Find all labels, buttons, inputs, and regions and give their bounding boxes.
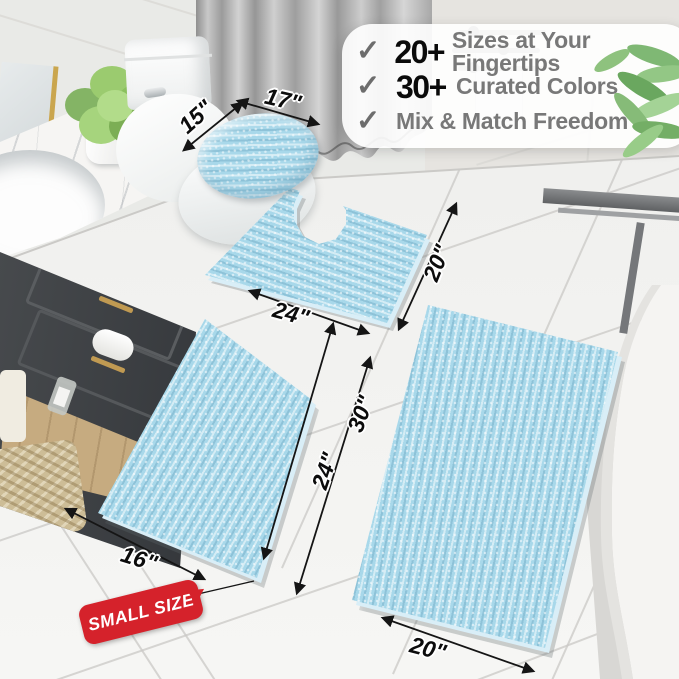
- checkmark-icon: ✓: [356, 72, 396, 101]
- checkmark-icon: ✓: [356, 107, 396, 136]
- plant-right: [578, 40, 679, 155]
- feature-number: 20+: [394, 36, 452, 68]
- product-image: 15" 17" 24" 20" 16" 24" 30" 20" SMALL SI…: [0, 0, 679, 679]
- bathtub: [585, 285, 679, 679]
- decor-bottle: [46, 376, 77, 417]
- feature-number: 30+: [396, 71, 456, 103]
- hanging-towel: [0, 370, 26, 442]
- checkmark-icon: ✓: [356, 37, 394, 66]
- bottle-label: [53, 386, 70, 407]
